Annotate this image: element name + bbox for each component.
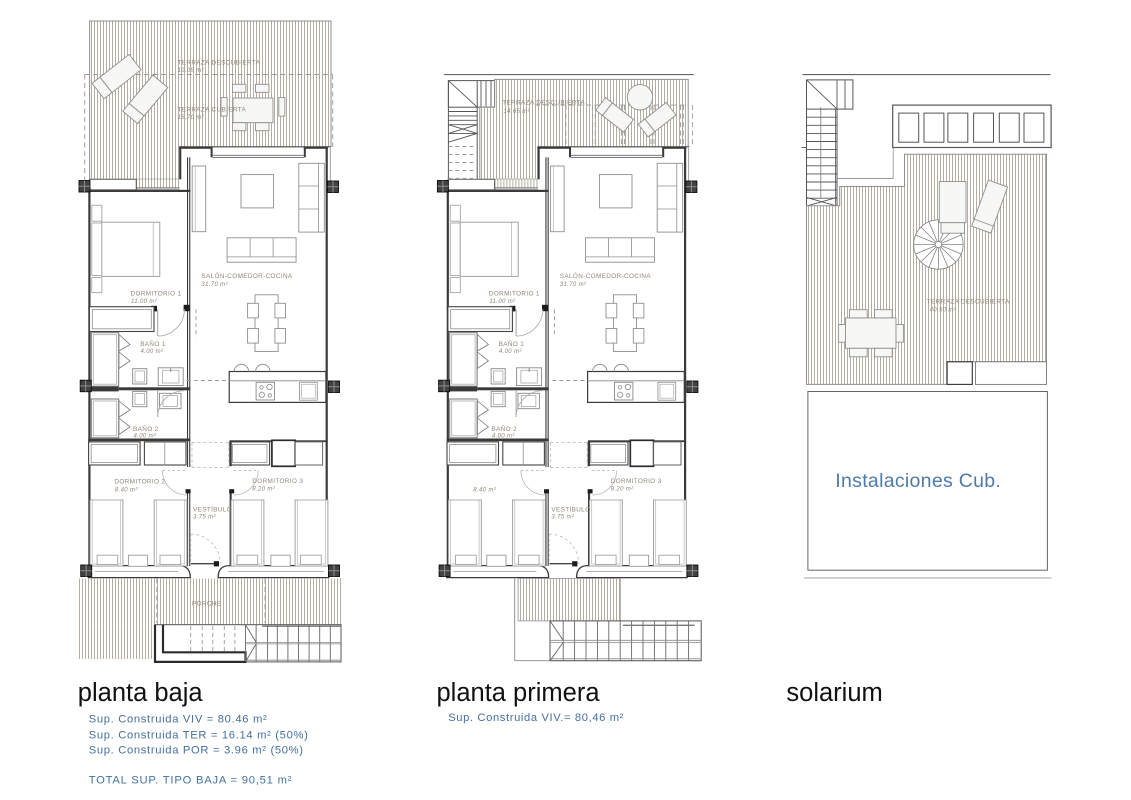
svg-text:4.00 m²: 4.00 m² [492, 434, 515, 440]
svg-text:SALÓN-COMEDOR-COCINA: SALÓN-COMEDOR-COCINA [560, 271, 652, 280]
svg-text:DORMITORIO 3: DORMITORIO 3 [252, 478, 303, 485]
svg-text:8.20 m²: 8.20 m² [252, 487, 275, 493]
svg-text:BAÑO 1: BAÑO 1 [140, 339, 166, 348]
svg-text:DORMITORIO 1: DORMITORIO 1 [489, 291, 540, 298]
svg-text:14.65 m²: 14.65 m² [504, 109, 531, 115]
svg-text:BAÑO 2: BAÑO 2 [491, 424, 517, 433]
svg-text:TERRAZA DESCUBIERTA: TERRAZA DESCUBIERTA [178, 60, 261, 67]
svg-text:DORMITORIO 2: DORMITORIO 2 [114, 479, 165, 486]
svg-text:Instalaciones Cub.: Instalaciones Cub. [835, 470, 1001, 492]
svg-text:TERRAZA CUBIERTA: TERRAZA CUBIERTA [178, 107, 247, 114]
svg-text:10.05 m²: 10.05 m² [178, 68, 205, 74]
svg-text:VESTÍBULO: VESTÍBULO [193, 504, 232, 513]
svg-text:3.75 m²: 3.75 m² [551, 515, 574, 521]
svg-text:TERRAZA DESCUBIERTA: TERRAZA DESCUBIERTA [502, 100, 585, 107]
svg-text:11.00 m²: 11.00 m² [131, 299, 158, 305]
svg-text:TOTAL SUP. TIPO BAJA = 90,51 m: TOTAL SUP. TIPO BAJA = 90,51 m² [89, 775, 293, 787]
svg-text:DORMITORIO 1: DORMITORIO 1 [131, 291, 182, 298]
svg-text:planta primera: planta primera [437, 679, 601, 707]
svg-text:8.20 m²: 8.20 m² [611, 487, 634, 493]
svg-text:DORMITORIO 3: DORMITORIO 3 [611, 478, 662, 485]
svg-text:BAÑO 1: BAÑO 1 [499, 339, 525, 348]
svg-text:3.75 m²: 3.75 m² [193, 515, 216, 521]
svg-text:8.40 m²: 8.40 m² [115, 487, 138, 493]
svg-text:15.70 m²: 15.70 m² [178, 115, 205, 121]
svg-text:4.00 m²: 4.00 m² [134, 434, 157, 440]
svg-text:SALÓN-COMEDOR-COCINA: SALÓN-COMEDOR-COCINA [201, 271, 293, 280]
svg-text:Sup. Construida VIV = 80.46 m²: Sup. Construida VIV = 80.46 m² [89, 714, 268, 726]
svg-text:Sup. Construida TER = 16.14 m²: Sup. Construida TER = 16.14 m² (50%) [89, 729, 309, 741]
svg-text:VESTÍBULO: VESTÍBULO [551, 504, 590, 513]
svg-text:solarium: solarium [786, 679, 882, 707]
svg-text:31.70 m²: 31.70 m² [201, 282, 228, 288]
svg-text:40.50 m²: 40.50 m² [930, 308, 957, 314]
svg-text:11.00 m²: 11.00 m² [489, 299, 516, 305]
svg-text:planta baja: planta baja [78, 679, 204, 707]
svg-text:Sup. Construida POR = 3.96 m²: Sup. Construida POR = 3.96 m² (50%) [89, 744, 304, 756]
svg-text:4.00 m²: 4.00 m² [141, 349, 164, 355]
svg-text:TERRAZA DESCUBIERTA: TERRAZA DESCUBIERTA [927, 299, 1010, 306]
svg-text:8.40 m²: 8.40 m² [473, 487, 496, 493]
svg-text:Sup. Construida VIV.= 80,46 m²: Sup. Construida VIV.= 80,46 m² [448, 712, 624, 724]
svg-text:31.70 m²: 31.70 m² [560, 282, 587, 288]
svg-text:BAÑO 2: BAÑO 2 [133, 424, 159, 433]
svg-text:4.00 m²: 4.00 m² [499, 349, 522, 355]
svg-text:PORCHE: PORCHE [192, 601, 221, 608]
